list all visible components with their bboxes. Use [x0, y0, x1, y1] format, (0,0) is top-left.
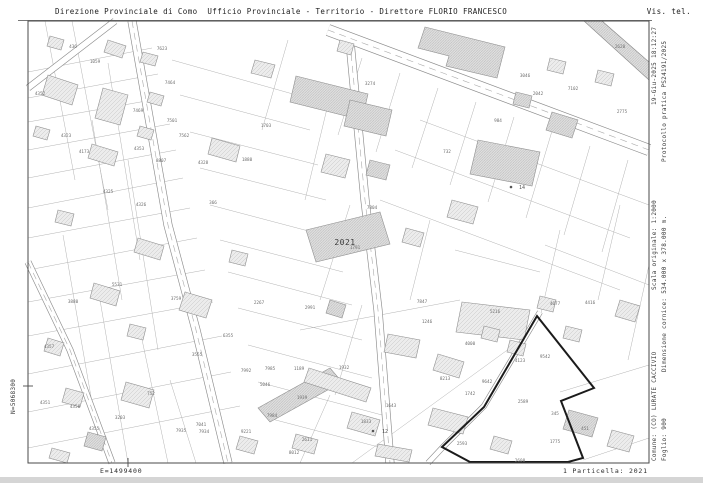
parcel-number-label: 4323 [61, 133, 72, 139]
parcel-boundary-line [200, 168, 326, 200]
building-footprint [384, 334, 420, 358]
parcel-number-label: 7934 [199, 429, 210, 435]
parcel-number-label: 4351 [40, 400, 51, 406]
parcel-boundary-line [305, 96, 330, 200]
parcel-number-label: 366 [209, 200, 217, 206]
parcel-number-label: 4357 [44, 344, 55, 350]
building-footprint [344, 100, 392, 136]
parcel-boundary-line [560, 365, 649, 392]
parcel-number-label: 7464 [165, 80, 176, 86]
north-coordinate-label: N=5068300 [10, 379, 17, 414]
building-footprint [447, 200, 478, 224]
parcel-number-label: 7992 [241, 368, 252, 374]
building-footprint [563, 326, 582, 342]
parcel-number-label: 8807 [156, 158, 167, 164]
building-footprint [208, 138, 240, 162]
building-footprint [47, 36, 64, 50]
parcel-number-label: 4350 [70, 404, 81, 410]
parcel-number-label: 1059 [90, 59, 101, 65]
parcel-number-label: 4416 [585, 300, 596, 306]
parcel-number-label: 7041 [196, 422, 207, 428]
parcel-number-label: 7847 [417, 299, 428, 305]
building-footprint [433, 354, 464, 378]
point-marker-label: 14 [519, 185, 525, 191]
building-footprint [95, 88, 128, 125]
parcel-number-label: 3880 [68, 299, 79, 305]
building-footprint [428, 408, 468, 434]
building-footprint [306, 212, 390, 262]
parcel-number-label: 1643 [386, 403, 397, 409]
parcel-number-label: 5531 [112, 282, 123, 288]
parcel-number-label: 345 [551, 411, 559, 417]
parcel-number-label: 752 [147, 391, 155, 397]
building-footprint [49, 448, 70, 463]
point-marker-label: 12 [382, 429, 388, 435]
parcel-number-label: 984 [494, 118, 502, 124]
parcel-boundary-line [602, 160, 628, 252]
building-footprint [134, 238, 164, 260]
parcel-number-label: 4325 [103, 189, 114, 195]
parcel-number-label: 1775 [550, 439, 561, 445]
building-footprint [375, 444, 412, 462]
parcel-number-label: 4326 [136, 202, 147, 208]
parcel-number-label: 1932 [339, 365, 350, 371]
parcel-number-label: 451 [581, 426, 589, 432]
building-footprint [127, 324, 146, 340]
building-footprint [490, 436, 512, 454]
building-footprint [55, 210, 74, 226]
parcel-number-label: 732 [443, 149, 451, 155]
parcel-boundary-line [28, 406, 240, 448]
parcel-boundary-line [545, 245, 649, 285]
parcel-number-label: 2620 [615, 44, 626, 50]
building-footprint [321, 154, 350, 178]
point-marker [372, 430, 375, 433]
foglio-label: Foglio: 900 [661, 418, 668, 461]
building-footprint [366, 160, 390, 180]
parcel-number-label: 4000 [465, 341, 476, 347]
parcel-number-label: 1833 [361, 419, 372, 425]
building-footprint [179, 292, 212, 318]
building-footprint [33, 126, 50, 140]
parcel-number-label: 7623 [157, 46, 168, 52]
highlighted-parcel-number: 2021 [334, 238, 355, 247]
building-footprint [251, 60, 275, 78]
building-footprint [595, 70, 614, 86]
parcel-number-label: 2589 [518, 399, 529, 405]
parcel-boundary-line [455, 250, 540, 272]
parcel-reference-label: 1 Particella: 2021 [563, 467, 648, 475]
parcel-number-label: 4173 [79, 149, 90, 155]
parcel-number-label: 7984 [267, 413, 278, 419]
railway-band [584, 21, 649, 80]
parcel-number-label: 4355 [89, 426, 100, 432]
cadastral-map-page: Direzione Provinciale di Como Ufficio Pr… [0, 0, 703, 483]
parcel-number-label: 1189 [294, 366, 305, 372]
protocol-label: Protocollo pratica PS24191/2025 [661, 41, 668, 162]
parcel-number-label: 5046 [260, 382, 271, 388]
parcel-boundary-line [170, 380, 196, 463]
road-surface [28, 21, 115, 88]
parcel-boundary-line [300, 395, 330, 463]
building-footprint [402, 228, 424, 247]
parcel-number-label: 7562 [179, 133, 190, 139]
parcel-number-label: 8213 [440, 376, 451, 382]
parcel-number-label: 4352 [35, 91, 46, 97]
parcel-number-label: 3203 [115, 415, 126, 421]
parcel-number-label: 7804 [367, 205, 378, 211]
parcel-number-label: 3759 [171, 296, 182, 302]
parcel-number-label: 2593 [457, 441, 468, 447]
parcel-number-label: 7469 [133, 108, 144, 114]
parcel-number-label: 2267 [254, 300, 265, 306]
building-footprint [88, 144, 118, 166]
parcel-number-label: 7102 [568, 86, 579, 92]
building-footprint [563, 410, 598, 437]
parcel-number-label: 2775 [617, 109, 628, 115]
parcel-number-label: 6355 [223, 333, 234, 339]
parcel-number-label: 3274 [365, 81, 376, 87]
parcel-number-label: 2042 [533, 91, 544, 97]
parcel-number-label: 3046 [520, 73, 531, 79]
parcel-number-label: 9221 [241, 429, 252, 435]
parcel-number-label: 4077 [550, 301, 561, 307]
comune-label: Comune: (CO) LURATE CACCIVIO [651, 351, 658, 461]
parcel-number-label: 4353 [134, 146, 145, 152]
parcel-number-label: 436 [69, 44, 77, 50]
parcel-number-label: 1703 [261, 123, 272, 129]
building-footprint [42, 75, 78, 105]
map-canvas[interactable]: 4361059762343527464746975017562432341734… [0, 0, 703, 483]
frame-size-label: Dimensione cornice: 534.000 x 378.000 m. [661, 216, 668, 373]
parcel-number-label: 9642 [482, 379, 493, 385]
parcel-number-label: 2991 [305, 305, 316, 311]
east-coordinate-label: E=1499400 [100, 467, 142, 475]
building-footprint [547, 58, 566, 74]
parcel-number-label: 4123 [515, 358, 526, 364]
timestamp-label: 19-Giu-2025 18:12:27 [651, 27, 658, 105]
parcel-number-label: 1246 [422, 319, 433, 325]
building-footprint [236, 436, 258, 454]
building-footprint [615, 300, 640, 322]
parcel-number-label: 7501 [167, 118, 178, 124]
point-marker [510, 186, 513, 189]
scale-label: Scala originale: 1:2000 [651, 200, 658, 290]
building-footprint [607, 430, 634, 452]
parcel-number-label: 3555 [192, 352, 203, 358]
parcel-number-label: 7985 [265, 366, 276, 372]
parcel-number-label: 5216 [490, 309, 501, 315]
parcel-boundary-line [262, 40, 288, 130]
window-bottom-edge [0, 477, 703, 483]
parcel-number-label: 9542 [540, 354, 551, 360]
parcel-number-label: 2611 [302, 437, 313, 443]
building-footprint [470, 140, 540, 186]
building-footprint [229, 250, 248, 266]
building-footprint [104, 40, 126, 58]
parcel-number-label: 1880 [242, 157, 253, 163]
parcel-boundary-line [228, 272, 352, 305]
parcel-number-label: 8012 [289, 450, 300, 456]
parcel-number-label: 1742 [465, 391, 476, 397]
parcel-number-label: 7935 [176, 428, 187, 434]
parcel-boundary-line [412, 88, 438, 168]
parcel-number-label: 1939 [297, 395, 308, 401]
parcel-number-label: 4328 [198, 160, 209, 166]
